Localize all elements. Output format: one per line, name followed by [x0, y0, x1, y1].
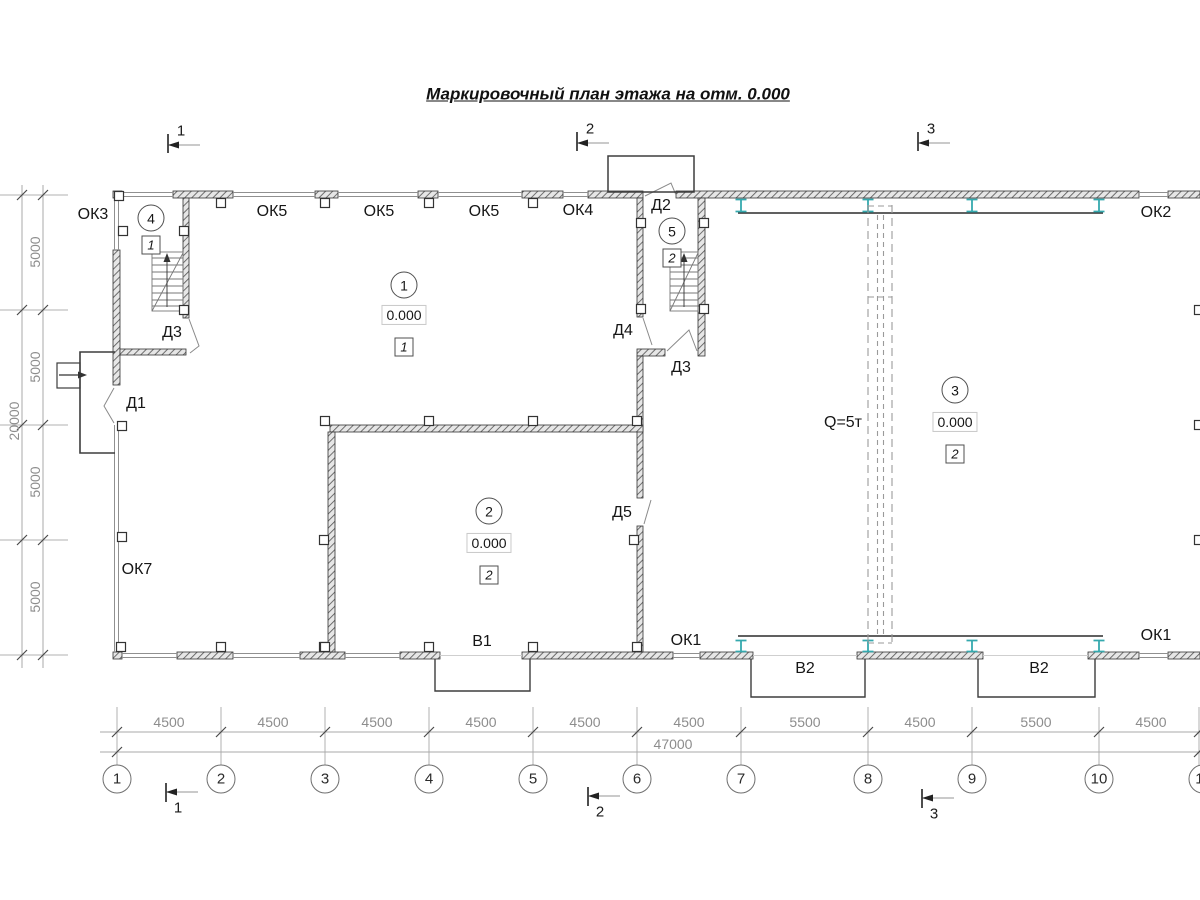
- window-label-ok2: ОК2: [1141, 205, 1172, 221]
- gate-label-v2: В2: [795, 661, 815, 677]
- grid-bubble-9: 9: [958, 765, 987, 794]
- dim-span: 4500: [904, 715, 935, 729]
- floor-plan-sheet: Маркировочный план этажа на отм. 0.000 О…: [0, 0, 1200, 900]
- entrance-arrow-head: [78, 372, 87, 379]
- dim-span: 5000: [28, 236, 42, 267]
- elevation-mark: 0.000: [466, 533, 511, 553]
- window-label-ok1: ОК1: [671, 633, 702, 649]
- dim-span: 5000: [28, 581, 42, 612]
- floor-type-mark: 1: [142, 236, 161, 255]
- grid-bubble-4: 4: [415, 765, 444, 794]
- section-number-bottom-2: 2: [596, 805, 604, 820]
- dim-total-bottom: 47000: [654, 737, 693, 751]
- room-tag-1: 1: [391, 272, 418, 299]
- section-number-top-1: 1: [177, 124, 185, 139]
- grid-bubble-6: 6: [623, 765, 652, 794]
- grid-bubble-2: 2: [207, 765, 236, 794]
- floor-type-mark: 2: [480, 566, 499, 585]
- window-label-ok3: ОК3: [78, 207, 109, 223]
- crane-columns: [736, 199, 1105, 652]
- window-label-ok4: ОК4: [563, 203, 594, 219]
- room-tag-3: 3: [942, 377, 969, 404]
- crane-bridge-dashed: [868, 205, 892, 643]
- dim-span: 5000: [28, 466, 42, 497]
- grid-bubble-8: 8: [854, 765, 883, 794]
- dim-span: 5500: [1020, 715, 1051, 729]
- dim-span: 4500: [1135, 715, 1166, 729]
- grid-bubble-7: 7: [727, 765, 756, 794]
- door-label-d4: Д4: [613, 323, 633, 339]
- dim-span: 4500: [153, 715, 184, 729]
- floor-type-mark: 1: [395, 338, 414, 357]
- dim-span: 4500: [257, 715, 288, 729]
- crane-capacity-label: Q=5т: [824, 415, 862, 431]
- room-tag-2: 2: [476, 498, 503, 525]
- dimension-lines-bottom: [100, 732, 1200, 752]
- column-markers: [115, 192, 1200, 652]
- door-label-d3: Д3: [162, 325, 182, 341]
- section-number-top-2: 2: [586, 122, 594, 137]
- dim-total-left: 20000: [7, 402, 21, 441]
- window-label-ok5: ОК5: [469, 204, 500, 220]
- window-label-ok1: ОК1: [1141, 628, 1172, 644]
- interior-walls: [120, 198, 705, 652]
- gate-ramps: [435, 659, 1095, 697]
- grid-bubble-1: 1: [103, 765, 132, 794]
- door-label-d3: Д3: [671, 360, 691, 376]
- floor-type-mark: 2: [946, 445, 965, 464]
- section-number-bottom-3: 3: [930, 807, 938, 822]
- dim-span: 5500: [789, 715, 820, 729]
- door-label-d5: Д5: [612, 505, 632, 521]
- room-tag-5: 5: [659, 218, 686, 245]
- floor-type-mark: 2: [663, 249, 682, 268]
- window-label-ok5: ОК5: [364, 204, 395, 220]
- window-label-ok5: ОК5: [257, 204, 288, 220]
- stairs-2-up-arrow: [681, 253, 688, 262]
- dim-span: 5000: [28, 351, 42, 382]
- window-label-ok7: ОК7: [122, 562, 153, 578]
- door-label-d2: Д2: [651, 198, 671, 214]
- grid-bubble-5: 5: [519, 765, 548, 794]
- section-number-bottom-1: 1: [174, 801, 182, 816]
- section-number-top-3: 3: [927, 122, 935, 137]
- section-marker-lines: [166, 132, 954, 808]
- dim-span: 4500: [569, 715, 600, 729]
- dim-span: 4500: [361, 715, 392, 729]
- dim-span: 4500: [673, 715, 704, 729]
- exterior-walls: [113, 191, 1200, 659]
- crane-rails: [738, 213, 1103, 636]
- gate-label-v1: В1: [472, 634, 492, 650]
- grid-bubble-10: 10: [1085, 765, 1114, 794]
- room-tag-4: 4: [138, 205, 165, 232]
- elevation-mark: 0.000: [381, 305, 426, 325]
- door-label-d1: Д1: [126, 396, 146, 412]
- elevation-mark: 0.000: [932, 412, 977, 432]
- grid-bubble-3: 3: [311, 765, 340, 794]
- drawing-title: Маркировочный план этажа на отм. 0.000: [426, 86, 790, 103]
- top-vestibule: [608, 156, 694, 192]
- dim-span: 4500: [465, 715, 496, 729]
- gate-label-v2: В2: [1029, 661, 1049, 677]
- stairs-1-up-arrow: [164, 253, 171, 262]
